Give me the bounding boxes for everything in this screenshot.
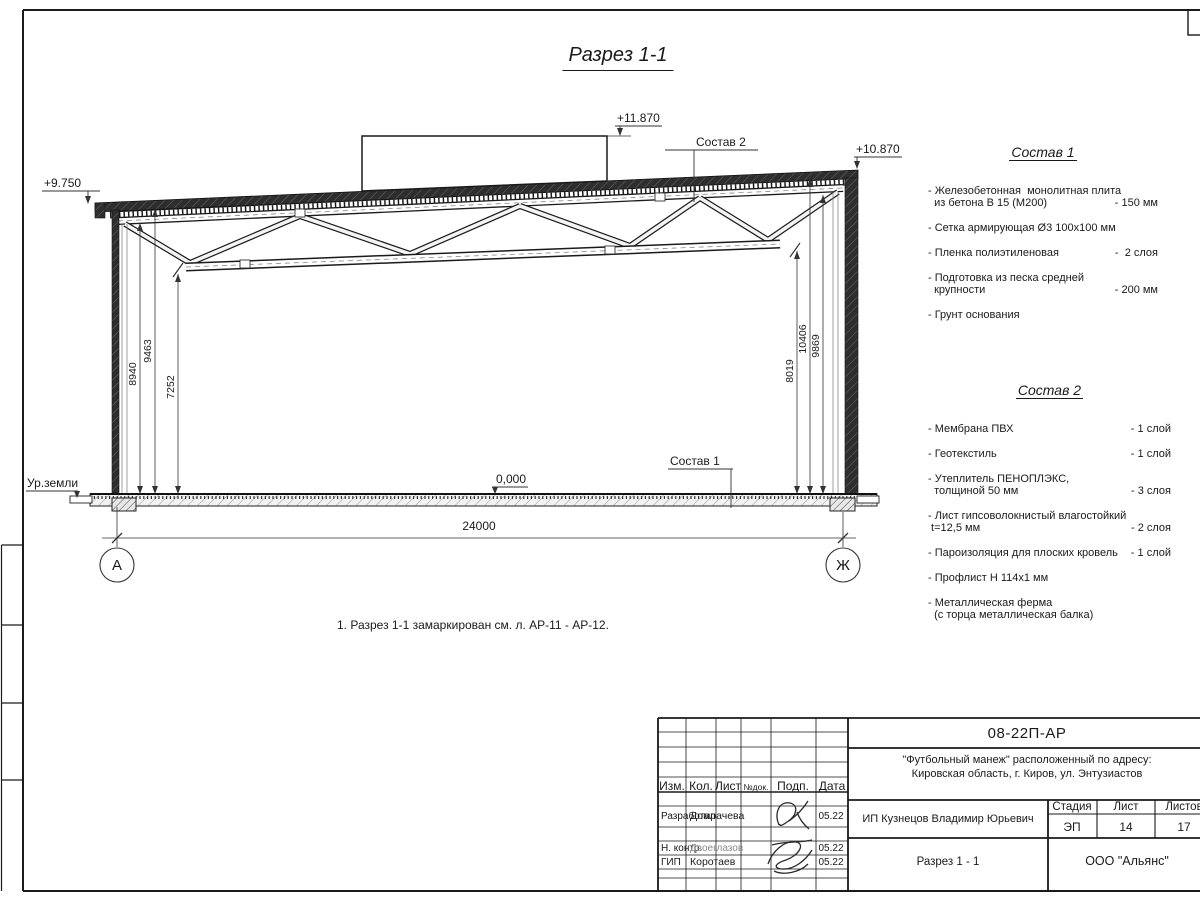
project-address-line2: Кировская область, г. Киров, ул. Энтузиа… xyxy=(912,768,1143,780)
floor-slab xyxy=(70,494,879,511)
rooftop-box xyxy=(362,136,607,191)
company-name: ООО "Альянс" xyxy=(1085,854,1169,868)
right-wall xyxy=(845,178,858,500)
sheets-total: 17 xyxy=(1177,820,1190,834)
list-item: - Подготовка из песка средней крупности-… xyxy=(928,272,1158,296)
dim-9463: 9463 xyxy=(142,339,154,363)
drawing-name: Разрез 1 - 1 xyxy=(917,856,980,868)
dim-10406: 10406 xyxy=(797,324,809,353)
list-item: - Грунт основания xyxy=(928,309,1158,321)
name-korotaev: Коротаев xyxy=(690,856,735,868)
dim-7252: 7252 xyxy=(165,375,177,399)
date-gip: 05.22 xyxy=(818,857,843,868)
list-item: - Утеплитель ПЕНОПЛЭКС, толщиной 50 мм- … xyxy=(928,473,1171,497)
col-header-ndok: №док. xyxy=(744,782,769,792)
list-item: - Пароизоляция для плоских кровель- 1 сл… xyxy=(928,547,1171,559)
project-address-line1: "Футбольный манеж" расположенный по адре… xyxy=(902,754,1151,766)
sostav1-title: Состав 1 xyxy=(928,146,1158,161)
list-item: - Металлическая ферма (с торца металличе… xyxy=(928,597,1171,621)
format-corner-box xyxy=(1188,10,1200,35)
signature-razrabotal xyxy=(777,801,809,829)
sheet-number: 14 xyxy=(1119,820,1132,834)
sostav2-ref-label: Состав 2 xyxy=(696,135,746,149)
list-item: - Железобетонная монолитная плита из бет… xyxy=(928,185,1158,209)
dim-9869: 9869 xyxy=(810,334,822,358)
list-item: - Мембрана ПВХ- 1 слой xyxy=(928,423,1171,435)
col-header-kol: Кол. xyxy=(689,779,713,793)
drawing-sheet: 8940 9463 7252 8019 10406 9869 +9.750 +1… xyxy=(0,0,1200,900)
roof-edge-cap xyxy=(95,203,105,218)
elevation-right-label: +10.870 xyxy=(856,142,900,156)
dimension-arrows xyxy=(137,179,826,494)
wall-inner-faces xyxy=(122,192,838,494)
sheets-label: Листов xyxy=(1165,801,1200,813)
grid-axis-zh: Ж xyxy=(836,557,850,574)
drawing-note: 1. Разрез 1-1 замаркирован см. л. АР-11 … xyxy=(337,618,609,632)
signatures xyxy=(768,801,812,873)
footing-left xyxy=(112,498,136,511)
elevation-left-label: +9.750 xyxy=(44,176,81,190)
footing-right xyxy=(830,498,855,511)
signature-gip xyxy=(768,840,812,873)
list-item: - Лист гипсоволокнистый влагостойкий t=1… xyxy=(928,510,1171,534)
list-item: - Профлист Н 114х1 мм xyxy=(928,572,1171,584)
elevation-box-label: +11.870 xyxy=(617,111,660,125)
sostav2-list: Состав 2 - Мембрана ПВХ- 1 слой - Геотек… xyxy=(928,384,1171,634)
left-margin-boxes xyxy=(2,545,24,891)
col-header-izm: Изм. xyxy=(659,779,685,793)
span-dim-text: 24000 xyxy=(462,519,496,533)
sostav1-list: Состав 1 - Железобетонная монолитная пли… xyxy=(928,146,1158,334)
grid-axis-a: А xyxy=(112,557,122,574)
list-item: - Пленка полиэтиленовая- 2 слоя xyxy=(928,247,1158,259)
date-nkontr: 05.22 xyxy=(818,843,843,854)
left-wall xyxy=(112,210,119,497)
stage-label: Стадия xyxy=(1052,801,1091,813)
col-header-list: Лист xyxy=(715,779,741,793)
name-dvoeglazov: Двоеглазов xyxy=(690,843,743,854)
ground-ledge-left xyxy=(70,496,92,503)
name-domracheva: Домрачева xyxy=(690,810,744,822)
ground-ledge-right xyxy=(857,496,879,503)
sheet-label: Лист xyxy=(1114,801,1139,813)
stage-value: ЭП xyxy=(1063,820,1080,834)
dim-8940: 8940 xyxy=(127,362,139,386)
sostav1-ref-label: Состав 1 xyxy=(670,454,720,468)
sostav2-title: Состав 2 xyxy=(928,384,1171,399)
ground-level-label: Ур.земли xyxy=(27,476,78,490)
list-item: - Геотекстиль- 1 слой xyxy=(928,448,1171,460)
client-name: ИП Кузнецов Владимир Юрьевич xyxy=(862,813,1033,825)
document-code: 08-22П-АР xyxy=(988,725,1067,742)
list-item: - Сетка армирующая Ø3 100х100 мм xyxy=(928,222,1158,234)
col-header-data: Дата xyxy=(819,779,846,793)
vertical-dimensions xyxy=(140,179,823,494)
role-gip: ГИП xyxy=(661,857,681,868)
elevation-zero-label: 0,000 xyxy=(496,472,526,486)
page-title: Разрез 1-1 xyxy=(562,44,673,71)
date-razrabotal: 05.22 xyxy=(818,811,843,822)
grid-bubbles: А Ж xyxy=(100,548,860,582)
dim-8019: 8019 xyxy=(784,359,796,383)
col-header-podp: Подп. xyxy=(777,779,809,793)
